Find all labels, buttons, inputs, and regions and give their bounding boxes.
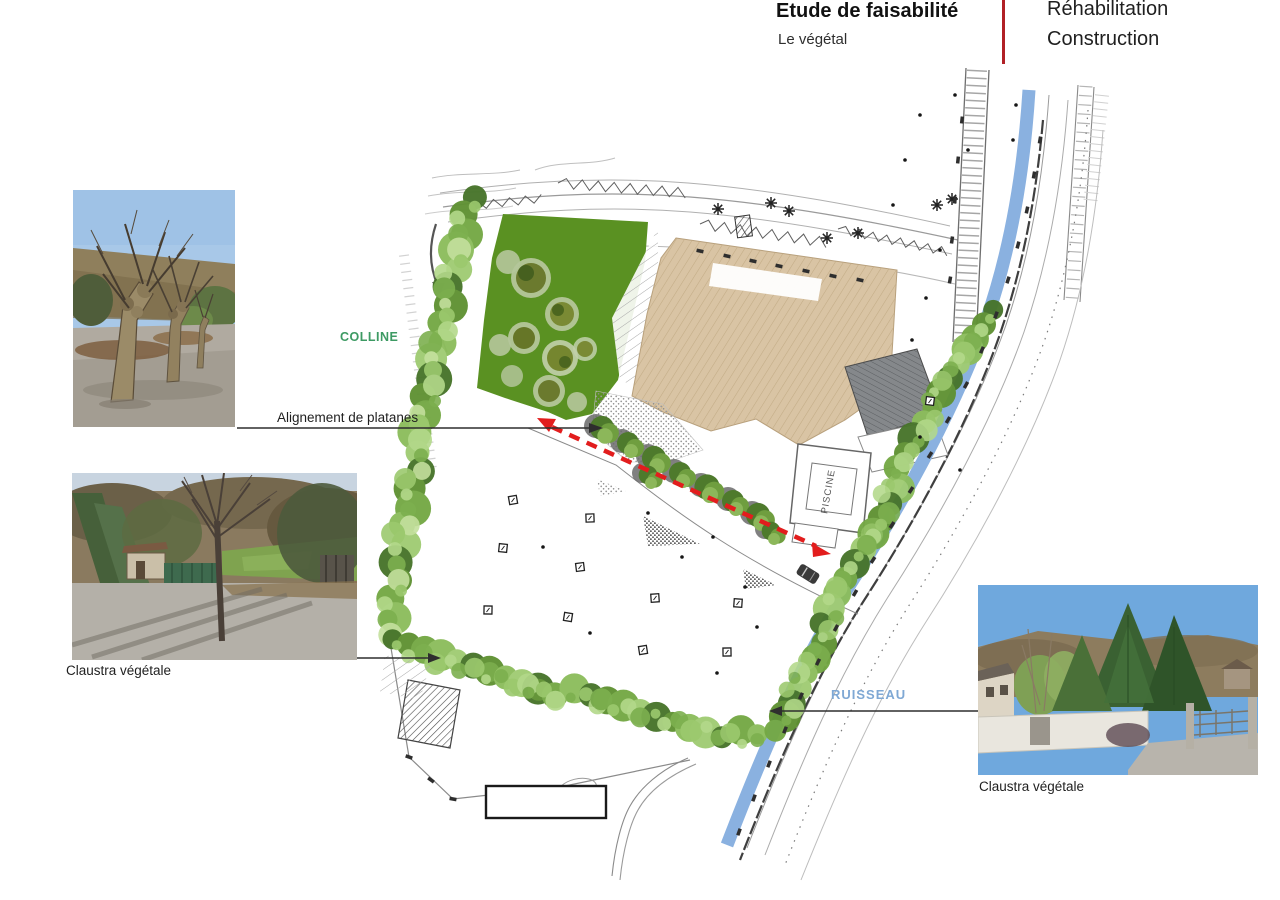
colline-label: COLLINE [340, 330, 398, 344]
meadow-colline [477, 214, 658, 420]
car [795, 563, 820, 585]
empty-title-box [486, 786, 606, 818]
claustra-left-annotation: Claustra végétale [66, 663, 171, 678]
photo-platanes [73, 190, 235, 427]
header-rehabilitation: Réhabilitation [1047, 0, 1168, 21]
photo-claustra-left [72, 473, 357, 660]
page-title: Etude de faisabilité [776, 0, 958, 23]
header-divider [1002, 0, 1005, 64]
page-subtitle: Le végétal [778, 31, 847, 48]
ruisseau-label: RUISSEAU [831, 687, 906, 702]
feasibility-study-page: PISCINE [0, 0, 1280, 900]
claustra-right-annotation: Claustra végétale [979, 779, 1084, 794]
header-construction: Construction [1047, 28, 1159, 51]
photo-claustra-right [978, 585, 1258, 775]
platanes-annotation: Alignement de platanes [277, 410, 418, 425]
